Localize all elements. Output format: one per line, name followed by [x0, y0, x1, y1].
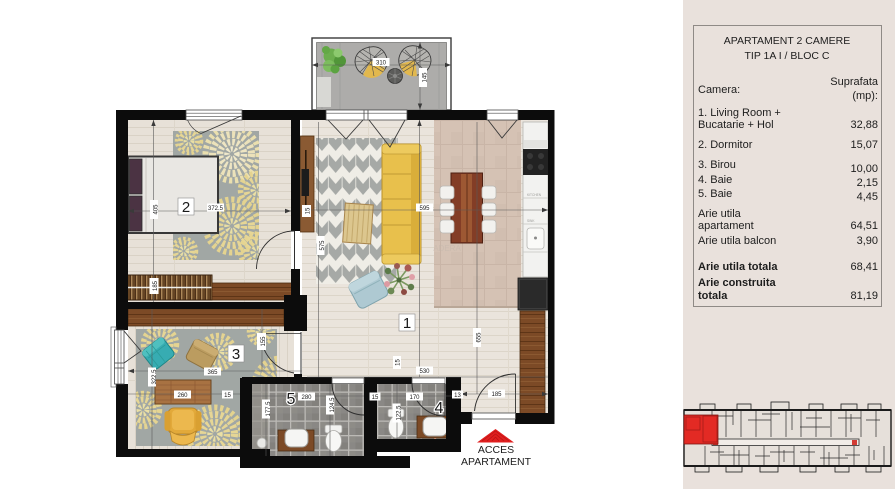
svg-text:15: 15: [224, 393, 231, 399]
svg-text:Arie utila balcon: Arie utila balcon: [698, 235, 776, 247]
svg-text:280: 280: [301, 395, 312, 401]
svg-text:530: 530: [419, 369, 430, 375]
svg-text:3. Birou: 3. Birou: [698, 159, 736, 171]
svg-text:Suprafata: Suprafata: [830, 76, 879, 88]
svg-text:SINK: SINK: [527, 219, 535, 223]
svg-text:ACCES: ACCES: [478, 444, 514, 456]
svg-text:APARTAMENT 2 CAMERE: APARTAMENT 2 CAMERE: [724, 35, 850, 47]
svg-text:TIP 1A I / BLOC C: TIP 1A I / BLOC C: [744, 50, 829, 62]
svg-text:405: 405: [154, 204, 160, 215]
svg-text:322.5: 322.5: [152, 369, 158, 385]
svg-text:4,45: 4,45: [857, 191, 878, 203]
svg-text:Bucatarie + Hol: Bucatarie + Hol: [698, 119, 774, 131]
svg-text:2. Dormitor: 2. Dormitor: [698, 139, 753, 151]
svg-text:365: 365: [207, 370, 218, 376]
svg-text:10,00: 10,00: [850, 163, 878, 175]
svg-text:655: 655: [477, 332, 483, 343]
svg-text:145: 145: [423, 72, 429, 83]
svg-text:1: 1: [403, 315, 411, 332]
svg-text:64,51: 64,51: [850, 220, 878, 232]
svg-text:595: 595: [419, 206, 430, 212]
svg-text:13: 13: [454, 393, 461, 399]
svg-text:122.5: 122.5: [397, 405, 403, 421]
svg-text:KITCHEN: KITCHEN: [527, 193, 542, 197]
svg-text:3,90: 3,90: [857, 235, 878, 247]
svg-text:372.5: 372.5: [208, 206, 224, 212]
svg-text:15: 15: [396, 359, 402, 366]
svg-text:124.5: 124.5: [330, 397, 336, 413]
svg-text:APARTAMENT: APARTAMENT: [461, 456, 532, 468]
svg-text:170: 170: [409, 395, 420, 401]
svg-text:81,19: 81,19: [850, 290, 878, 302]
svg-text:Arie utila: Arie utila: [698, 208, 742, 220]
svg-text:575: 575: [320, 240, 326, 251]
svg-text:15,07: 15,07: [850, 139, 878, 151]
svg-text:(mp):: (mp):: [852, 90, 878, 102]
svg-text:Camera:: Camera:: [698, 84, 740, 96]
svg-text:177.5: 177.5: [266, 401, 272, 417]
svg-text:185: 185: [153, 280, 159, 291]
svg-text:15: 15: [372, 395, 379, 401]
svg-text:2,15: 2,15: [857, 177, 878, 189]
svg-text:Arie utila totala: Arie utila totala: [698, 261, 778, 273]
svg-text:185: 185: [491, 392, 502, 398]
svg-text:1. Living Room +: 1. Living Room +: [698, 107, 781, 119]
svg-text:4: 4: [435, 400, 444, 417]
svg-text:totala: totala: [698, 290, 728, 302]
svg-text:Arie construita: Arie construita: [698, 277, 777, 289]
svg-text:5. Baie: 5. Baie: [698, 188, 732, 200]
svg-text:68,41: 68,41: [850, 261, 878, 273]
svg-text:15: 15: [306, 207, 312, 214]
svg-text:2: 2: [182, 199, 190, 216]
svg-text:5: 5: [287, 391, 296, 408]
svg-text:32,88: 32,88: [850, 119, 878, 131]
svg-text:260: 260: [177, 393, 188, 399]
svg-text:ADERA: ADERA: [433, 244, 461, 253]
svg-text:apartament: apartament: [698, 220, 754, 232]
svg-text:4. Baie: 4. Baie: [698, 174, 732, 186]
svg-text:310: 310: [376, 61, 387, 67]
svg-text:155: 155: [261, 336, 267, 347]
svg-text:3: 3: [232, 346, 240, 363]
